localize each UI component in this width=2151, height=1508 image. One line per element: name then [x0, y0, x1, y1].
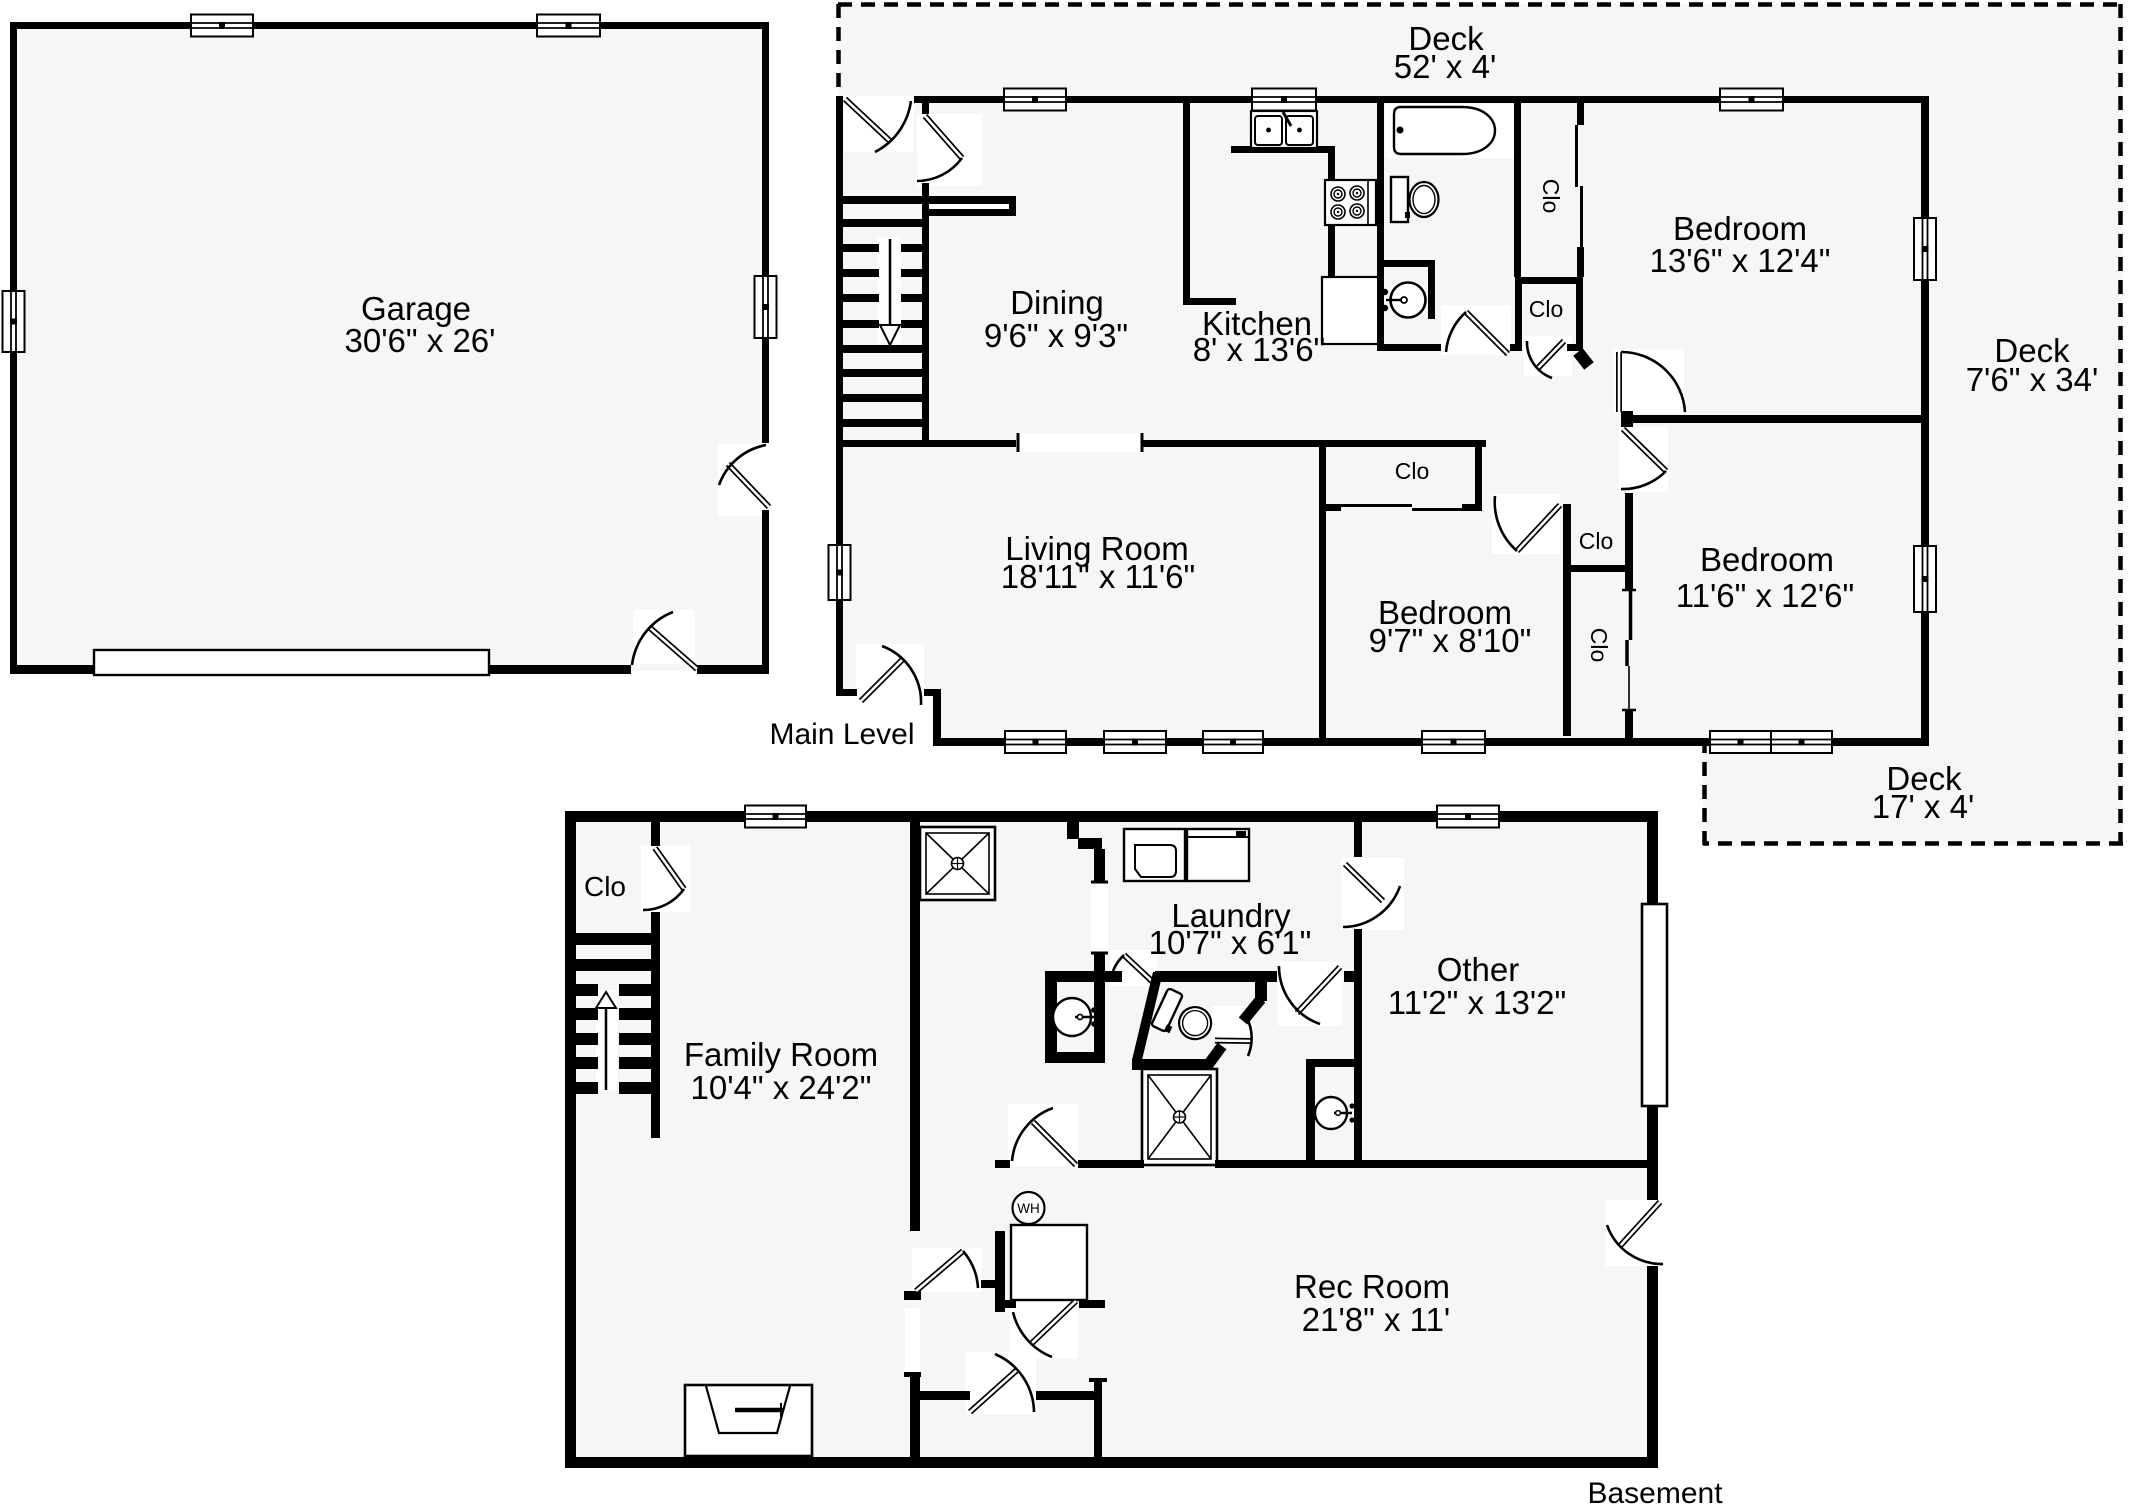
svg-text:11'2" x 13'2": 11'2" x 13'2"	[1388, 984, 1567, 1021]
svg-text:21'8" x 11': 21'8" x 11'	[1302, 1301, 1450, 1338]
svg-text:Dining: Dining	[1010, 284, 1104, 321]
svg-text:7'6" x 34': 7'6" x 34'	[1966, 361, 2099, 398]
svg-text:Clo: Clo	[1538, 179, 1564, 214]
svg-text:Rec Room: Rec Room	[1294, 1268, 1450, 1305]
svg-text:30'6" x 26': 30'6" x 26'	[345, 322, 496, 359]
svg-text:Clo: Clo	[584, 871, 626, 902]
svg-text:Basement: Basement	[1587, 1477, 1723, 1508]
svg-text:Main Level: Main Level	[769, 718, 914, 751]
svg-text:10'4" x 24'2": 10'4" x 24'2"	[691, 1069, 872, 1106]
svg-text:WH: WH	[1017, 1201, 1040, 1216]
svg-text:Clo: Clo	[1529, 296, 1564, 322]
svg-text:Clo: Clo	[1395, 458, 1430, 484]
svg-text:9'7" x 8'10": 9'7" x 8'10"	[1369, 622, 1532, 659]
svg-text:Clo: Clo	[1586, 628, 1612, 663]
svg-text:9'6" x 9'3": 9'6" x 9'3"	[984, 317, 1128, 354]
svg-text:8' x 13'6": 8' x 13'6"	[1193, 331, 1326, 368]
svg-text:Family Room: Family Room	[684, 1036, 878, 1073]
svg-text:Clo: Clo	[1579, 528, 1614, 554]
svg-text:10'7" x 6'1": 10'7" x 6'1"	[1149, 924, 1312, 961]
svg-text:17' x 4': 17' x 4'	[1872, 788, 1975, 825]
svg-text:Bedroom: Bedroom	[1700, 541, 1834, 578]
svg-text:13'6" x 12'4": 13'6" x 12'4"	[1650, 242, 1831, 279]
svg-text:11'6" x 12'6": 11'6" x 12'6"	[1676, 577, 1855, 614]
svg-text:18'11" x 11'6": 18'11" x 11'6"	[1001, 558, 1195, 595]
svg-text:Other: Other	[1437, 951, 1520, 988]
svg-text:52' x 4': 52' x 4'	[1394, 48, 1497, 85]
